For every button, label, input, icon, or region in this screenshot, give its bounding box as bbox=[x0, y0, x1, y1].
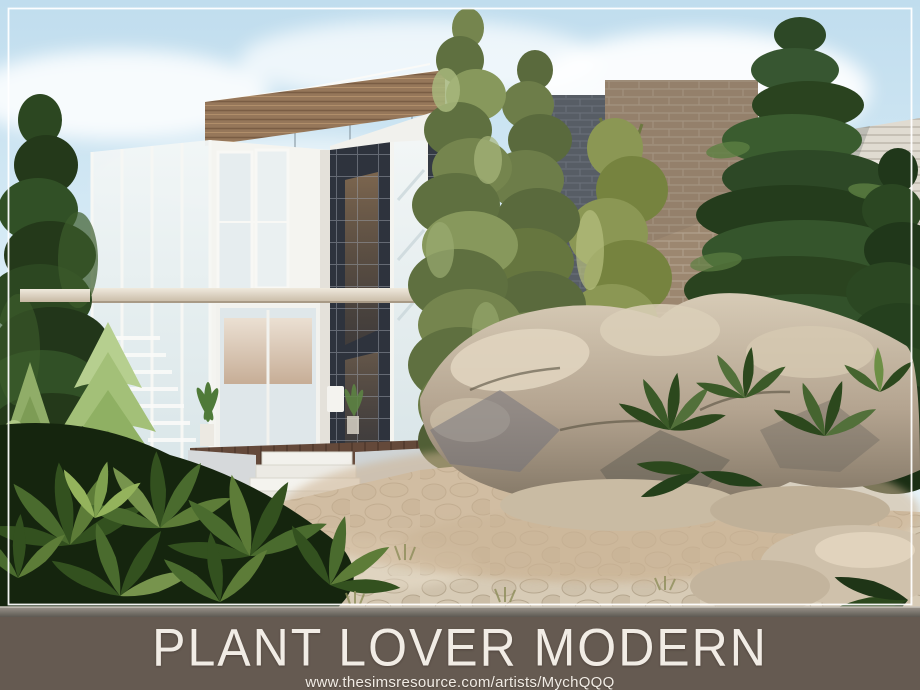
mailbox bbox=[327, 386, 344, 412]
upper-windows bbox=[218, 150, 288, 290]
floor-slab bbox=[88, 288, 445, 303]
title-banner: PLANT LOVER MODERN www.thesimsresource.c… bbox=[0, 617, 920, 690]
entry-door bbox=[218, 306, 318, 456]
page-title: PLANT LOVER MODERN bbox=[152, 621, 768, 674]
promo-screenshot: PLANT LOVER MODERN www.thesimsresource.c… bbox=[0, 0, 920, 690]
scene-illustration bbox=[0, 0, 920, 618]
dark-tile-wall bbox=[330, 142, 392, 468]
floating-beam bbox=[20, 289, 90, 302]
